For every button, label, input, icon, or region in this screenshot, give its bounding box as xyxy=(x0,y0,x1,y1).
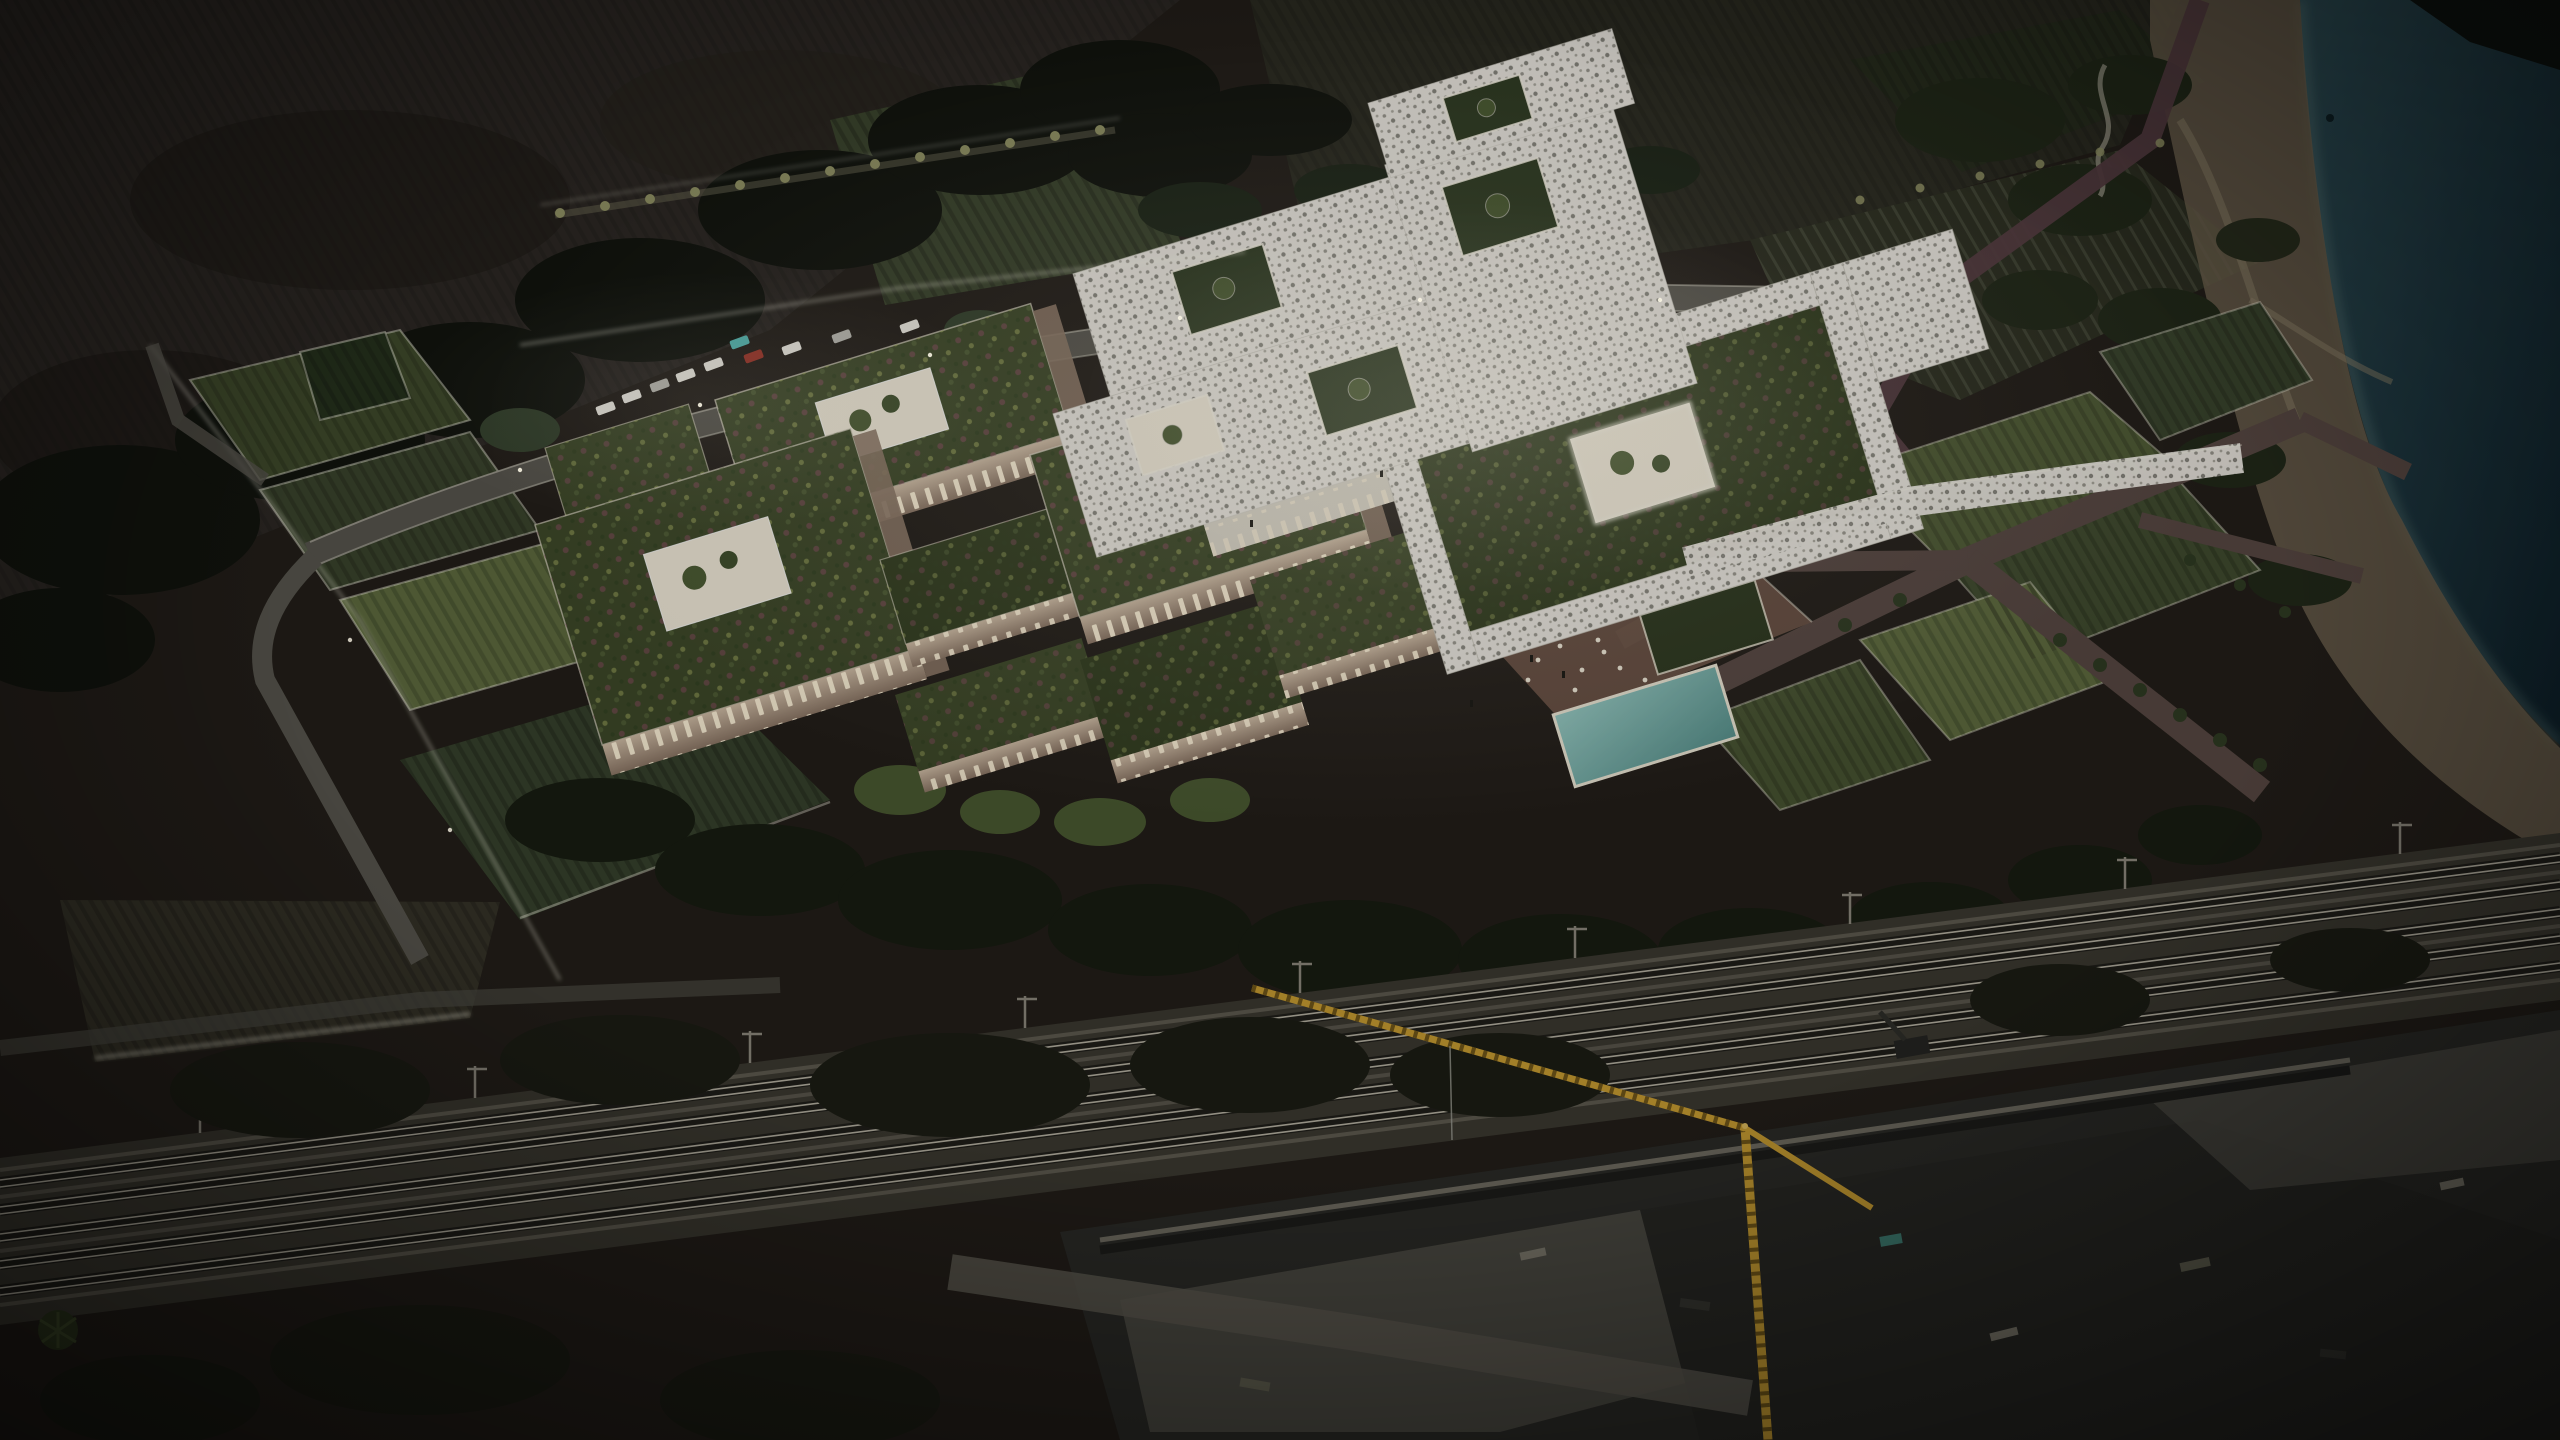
vignette xyxy=(0,0,2560,1440)
aerial-architectural-rendering xyxy=(0,0,2560,1440)
